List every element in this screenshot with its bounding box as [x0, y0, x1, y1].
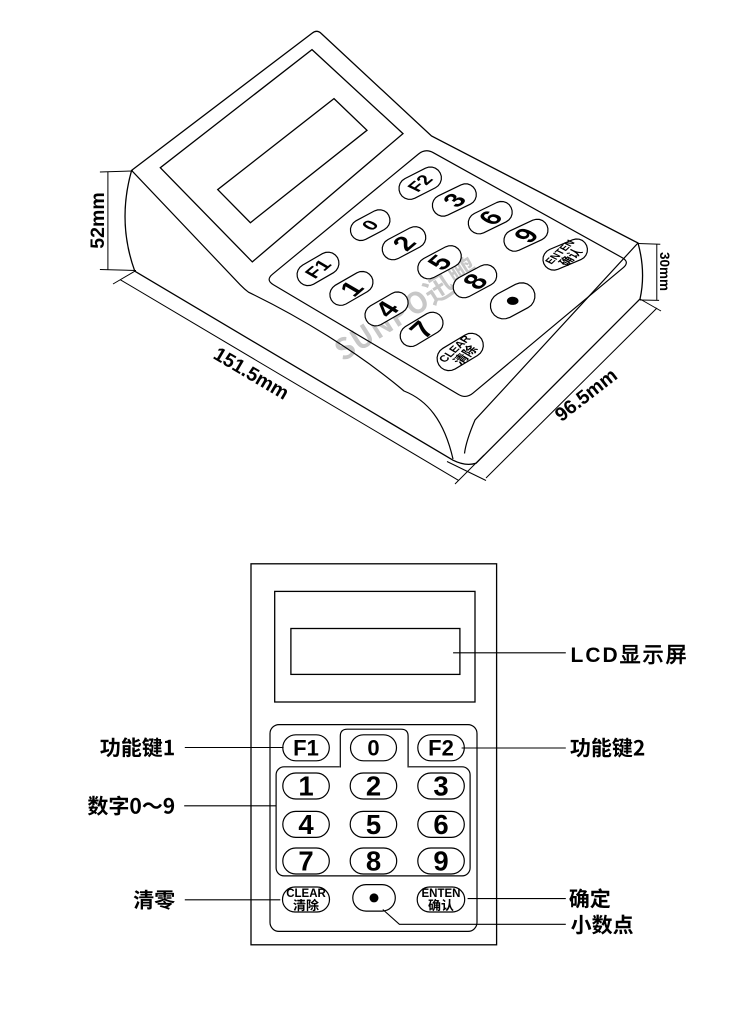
svg-text:2: 2 — [366, 771, 381, 802]
svg-text:6: 6 — [433, 809, 448, 840]
svg-text:F1: F1 — [293, 735, 319, 760]
svg-text:4: 4 — [298, 809, 314, 840]
svg-text:1: 1 — [298, 771, 313, 802]
svg-text:7: 7 — [298, 846, 313, 877]
svg-text:151.5mm: 151.5mm — [210, 343, 293, 404]
svg-text:0: 0 — [367, 735, 379, 760]
svg-text:LCD显示屏: LCD显示屏 — [571, 644, 689, 667]
svg-text:8: 8 — [366, 846, 381, 877]
svg-text:9: 9 — [433, 846, 448, 877]
svg-text:ENTEN: ENTEN — [422, 888, 461, 900]
svg-text:CLEAR: CLEAR — [286, 888, 326, 900]
svg-text:3: 3 — [433, 771, 448, 802]
svg-text:52mm: 52mm — [87, 192, 109, 248]
svg-text:30mm: 30mm — [657, 252, 672, 291]
svg-text:F2: F2 — [428, 735, 454, 760]
svg-text:96.5mm: 96.5mm — [551, 364, 622, 426]
svg-text:5: 5 — [366, 809, 381, 840]
